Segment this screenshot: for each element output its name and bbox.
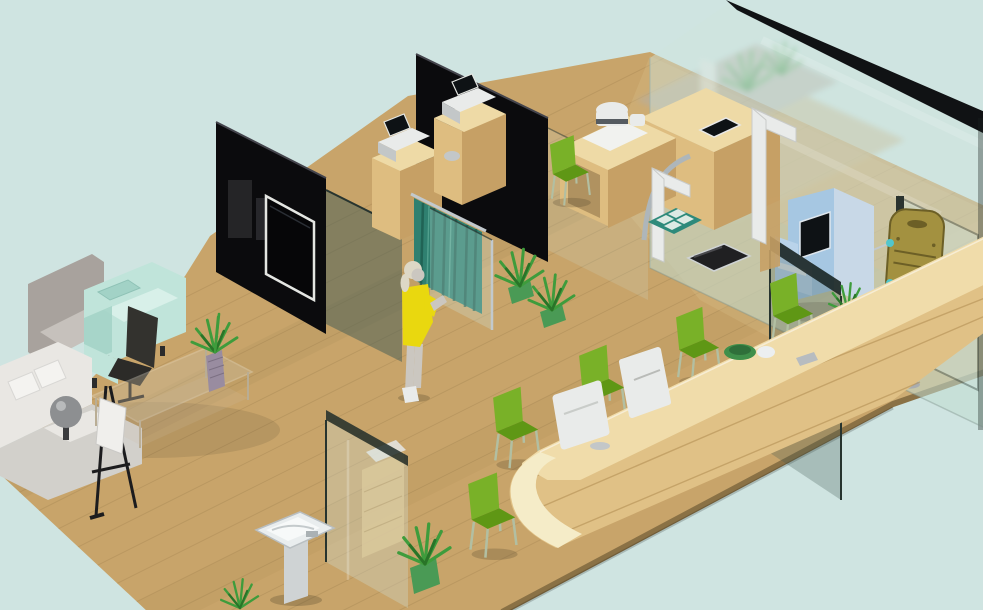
green-bowl [724, 344, 775, 360]
isometric-interior-render [0, 0, 983, 610]
tap [306, 531, 318, 537]
counter-device [622, 350, 668, 415]
scene-canvas [0, 0, 983, 610]
